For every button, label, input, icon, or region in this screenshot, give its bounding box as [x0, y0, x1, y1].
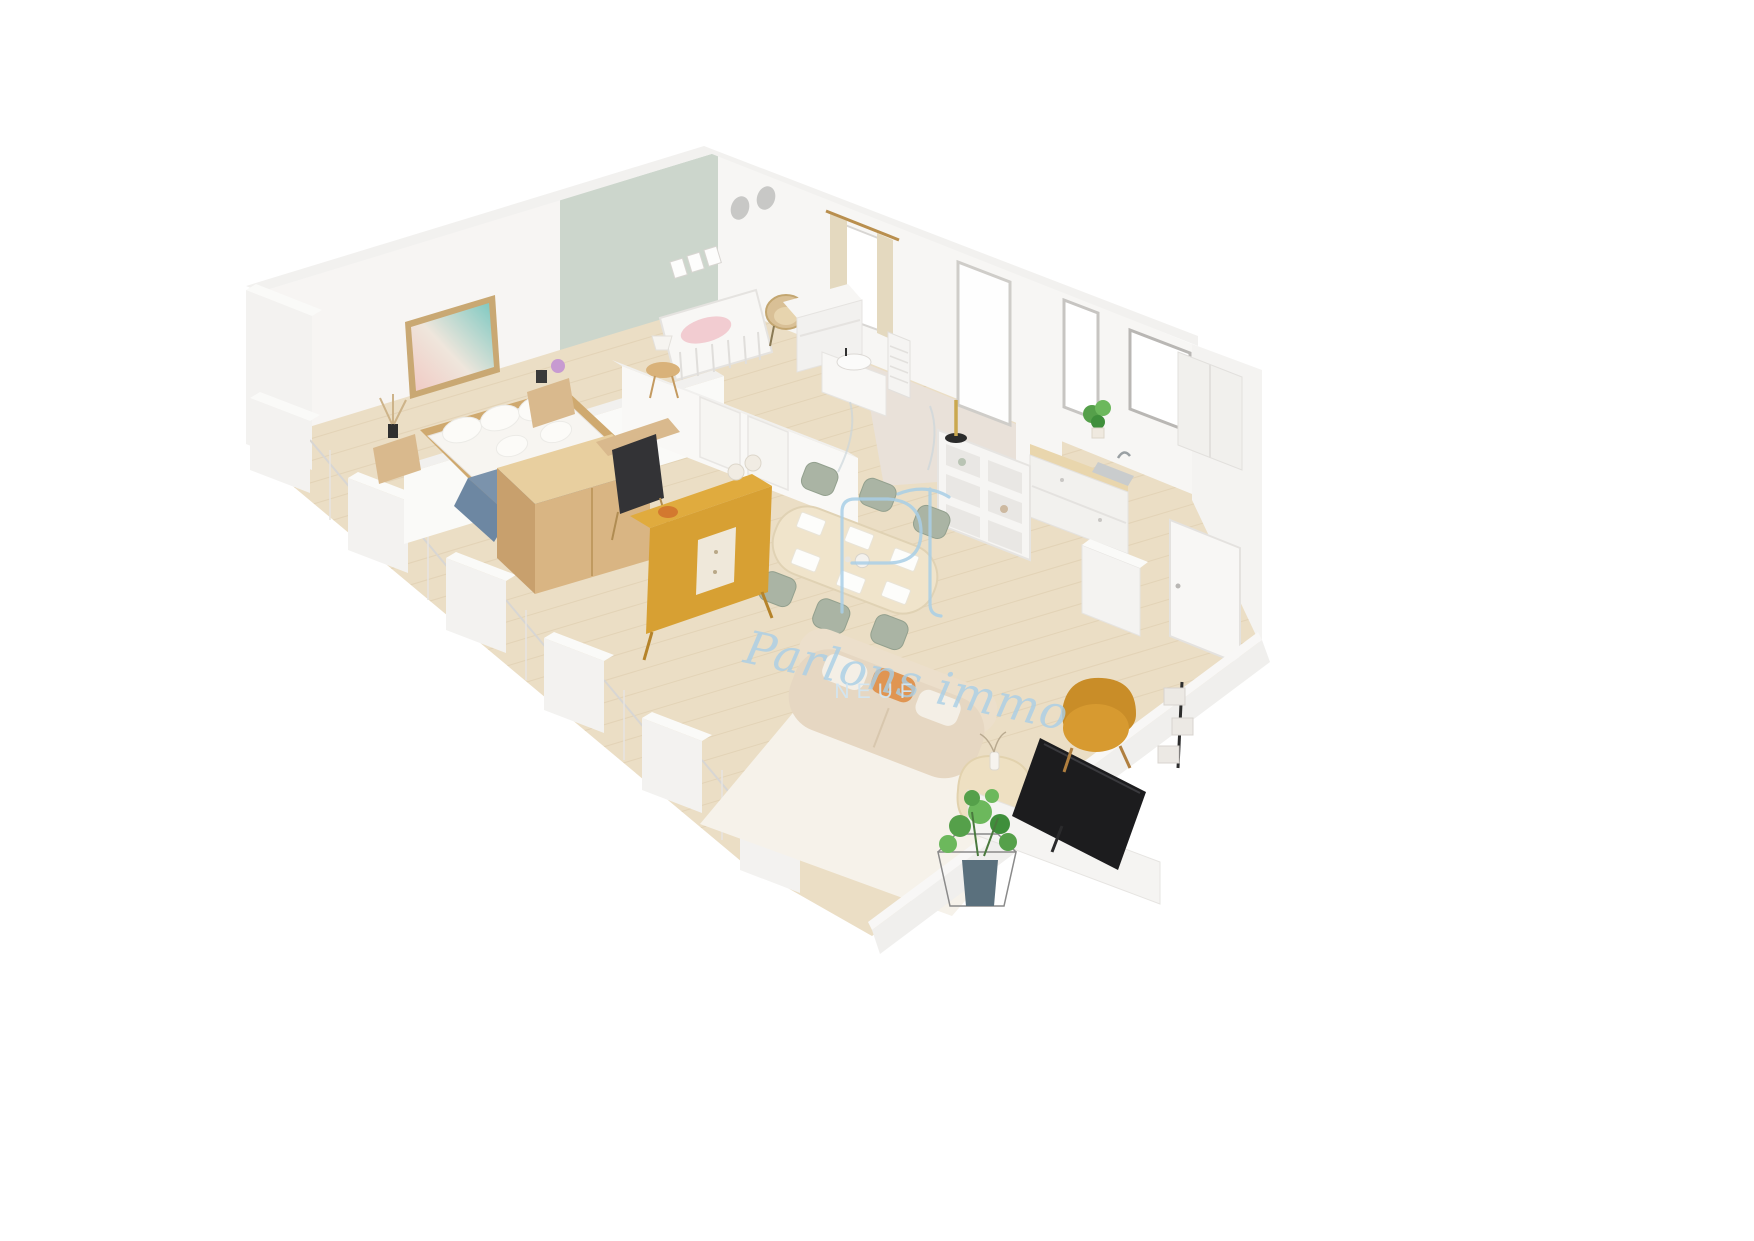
- orange-bowl: [658, 506, 678, 518]
- flower-vase: [551, 359, 565, 373]
- table-lamp: [652, 336, 672, 350]
- plant-pot: [962, 860, 998, 906]
- door-handle: [1176, 584, 1181, 589]
- black-vase: [388, 424, 398, 438]
- hall-glass-door: [1064, 300, 1098, 420]
- photo-frame: [536, 370, 547, 383]
- white-pot-1: [728, 464, 744, 480]
- floor-plan-render: Parlons immo NEUF: [0, 0, 1754, 1241]
- floor-plan-canvas: Parlons immo NEUF: [0, 0, 1754, 1241]
- small-vase: [990, 752, 999, 770]
- bathroom-window: [958, 262, 1010, 425]
- curtain-right: [877, 233, 893, 340]
- white-pot-2: [745, 455, 761, 471]
- towel-radiator: [888, 332, 910, 398]
- watermark-caption: NEUF: [834, 680, 919, 703]
- armchair-seat: [1063, 704, 1129, 752]
